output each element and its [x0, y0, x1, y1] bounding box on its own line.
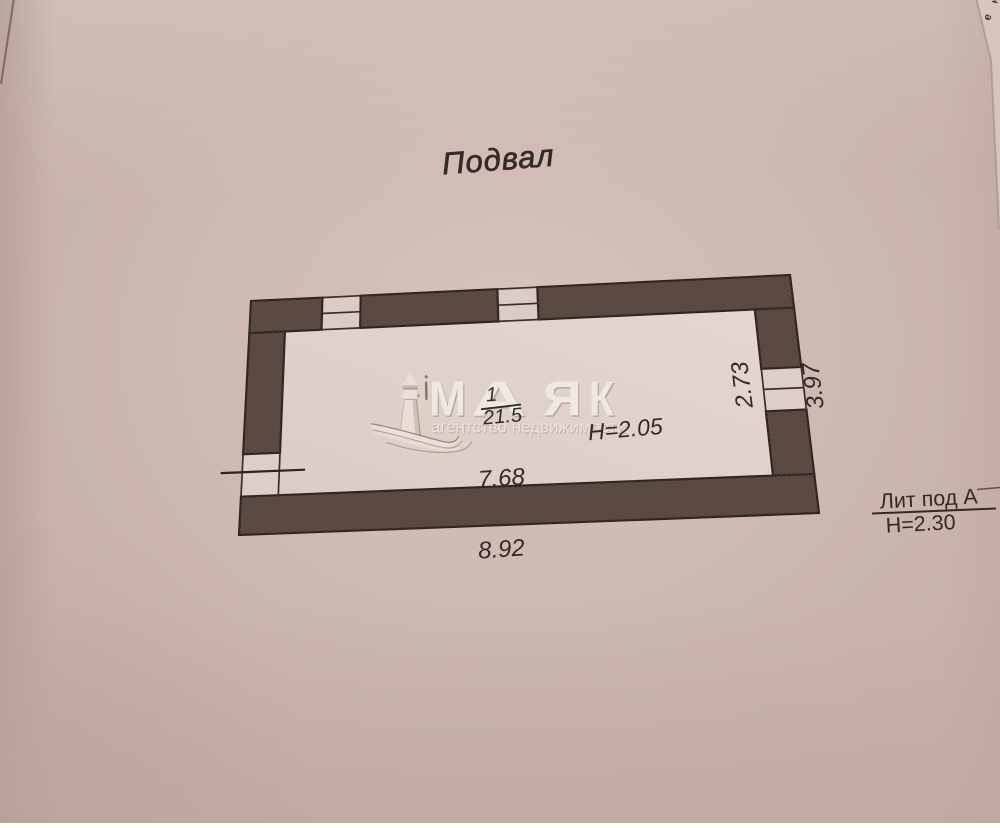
- svg-text:8.92: 8.92: [477, 534, 525, 564]
- svg-text:Н=2.30: Н=2.30: [885, 510, 956, 538]
- svg-text:7.68: 7.68: [477, 463, 526, 493]
- svg-text:21.5: 21.5: [481, 404, 524, 429]
- svg-text:1: 1: [485, 384, 498, 407]
